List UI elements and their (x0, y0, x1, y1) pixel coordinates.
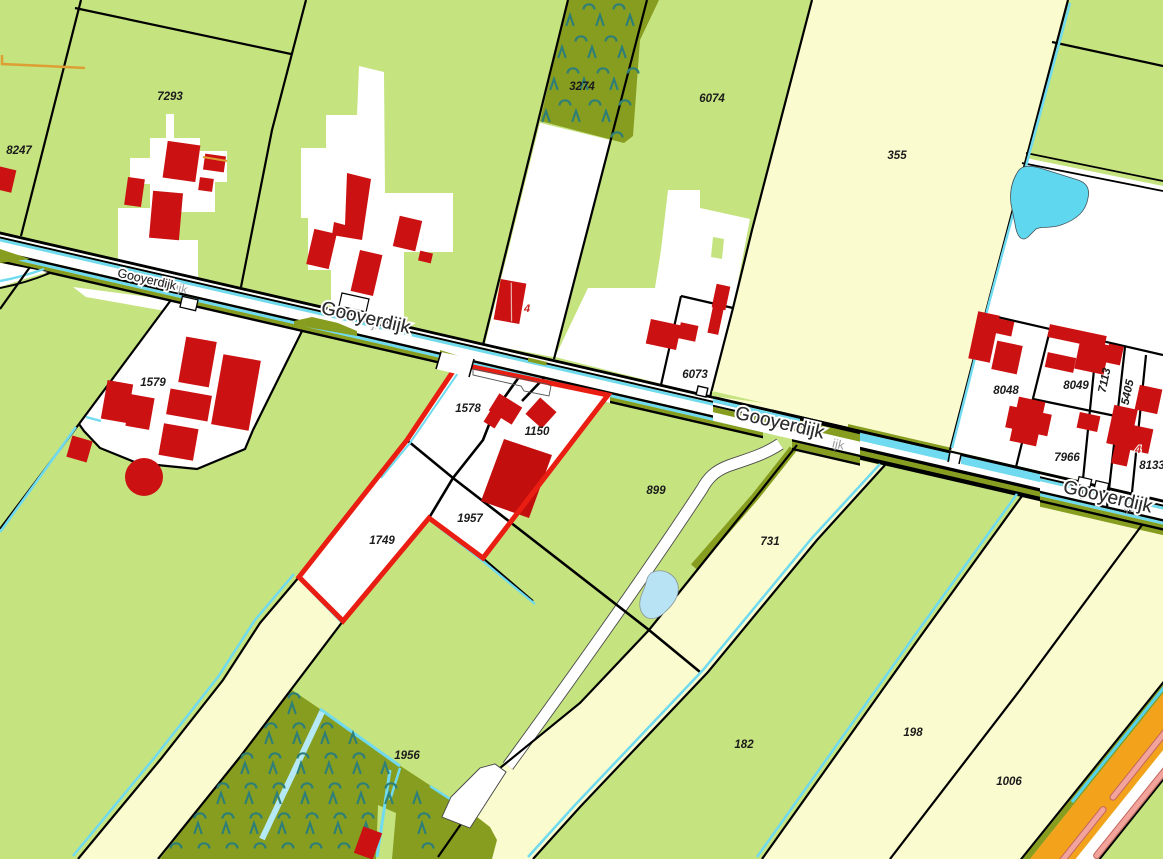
svg-text:6074: 6074 (699, 93, 725, 105)
svg-text:1578: 1578 (455, 403, 481, 415)
svg-text:1579: 1579 (140, 377, 166, 389)
svg-text:8133: 8133 (1139, 460, 1163, 472)
svg-text:182: 182 (734, 739, 754, 751)
svg-text:4: 4 (523, 303, 530, 315)
svg-text:1749: 1749 (369, 535, 395, 547)
svg-text:8048: 8048 (993, 385, 1019, 397)
svg-text:8049: 8049 (1063, 380, 1089, 392)
svg-text:1006: 1006 (996, 776, 1022, 788)
svg-text:4: 4 (1134, 444, 1141, 456)
svg-text:198: 198 (903, 727, 923, 739)
svg-text:1956: 1956 (394, 750, 420, 762)
svg-text:355: 355 (887, 150, 907, 162)
svg-text:1957: 1957 (457, 513, 483, 525)
svg-text:1150: 1150 (525, 426, 550, 438)
svg-text:7293: 7293 (157, 91, 183, 103)
svg-text:6073: 6073 (682, 369, 708, 381)
svg-text:7966: 7966 (1054, 452, 1080, 464)
svg-text:3274: 3274 (569, 81, 595, 93)
svg-text:8247: 8247 (6, 145, 32, 157)
svg-text:899: 899 (646, 485, 666, 497)
svg-text:731: 731 (760, 536, 779, 548)
